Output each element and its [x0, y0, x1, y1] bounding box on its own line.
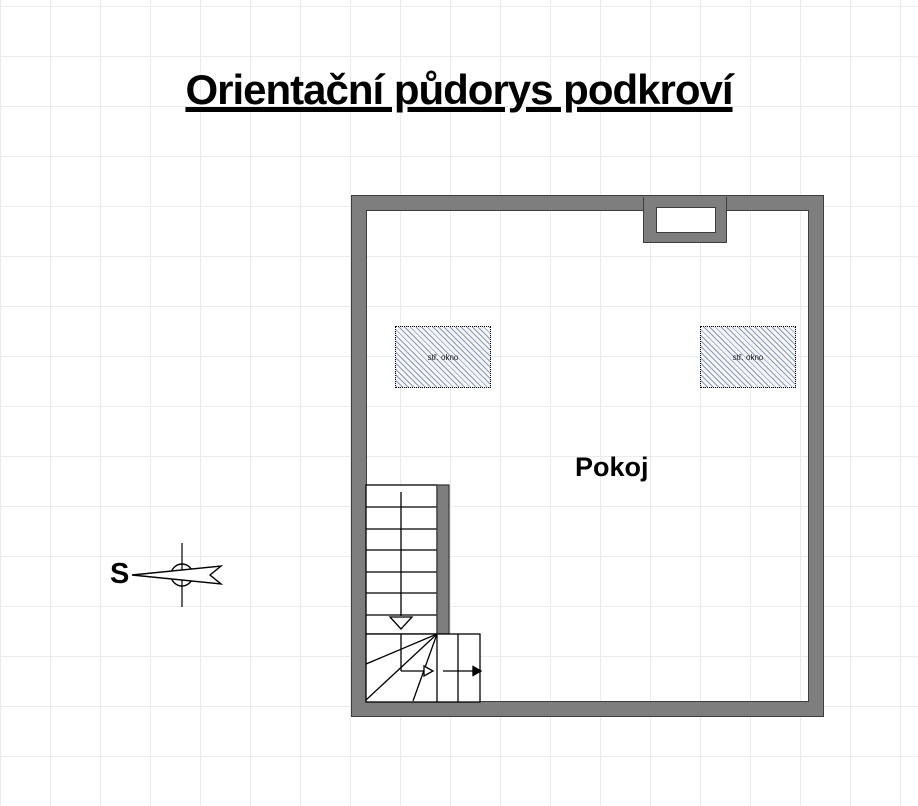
compass-label: S — [110, 558, 129, 591]
room-label: Pokoj — [575, 452, 649, 483]
roof-window-left: stř. okno — [395, 326, 491, 388]
chimney-niche-opening — [656, 207, 716, 233]
floorplan-canvas: Orientační půdorys podkroví stř. okno st… — [0, 0, 918, 806]
north-arrow-icon — [132, 543, 221, 607]
roof-window-label: stř. okno — [428, 353, 459, 362]
chimney-niche — [643, 197, 727, 243]
roof-window-right: stř. okno — [700, 326, 796, 388]
roof-window-label: stř. okno — [733, 353, 764, 362]
page-title: Orientační půdorys podkroví — [0, 66, 918, 114]
